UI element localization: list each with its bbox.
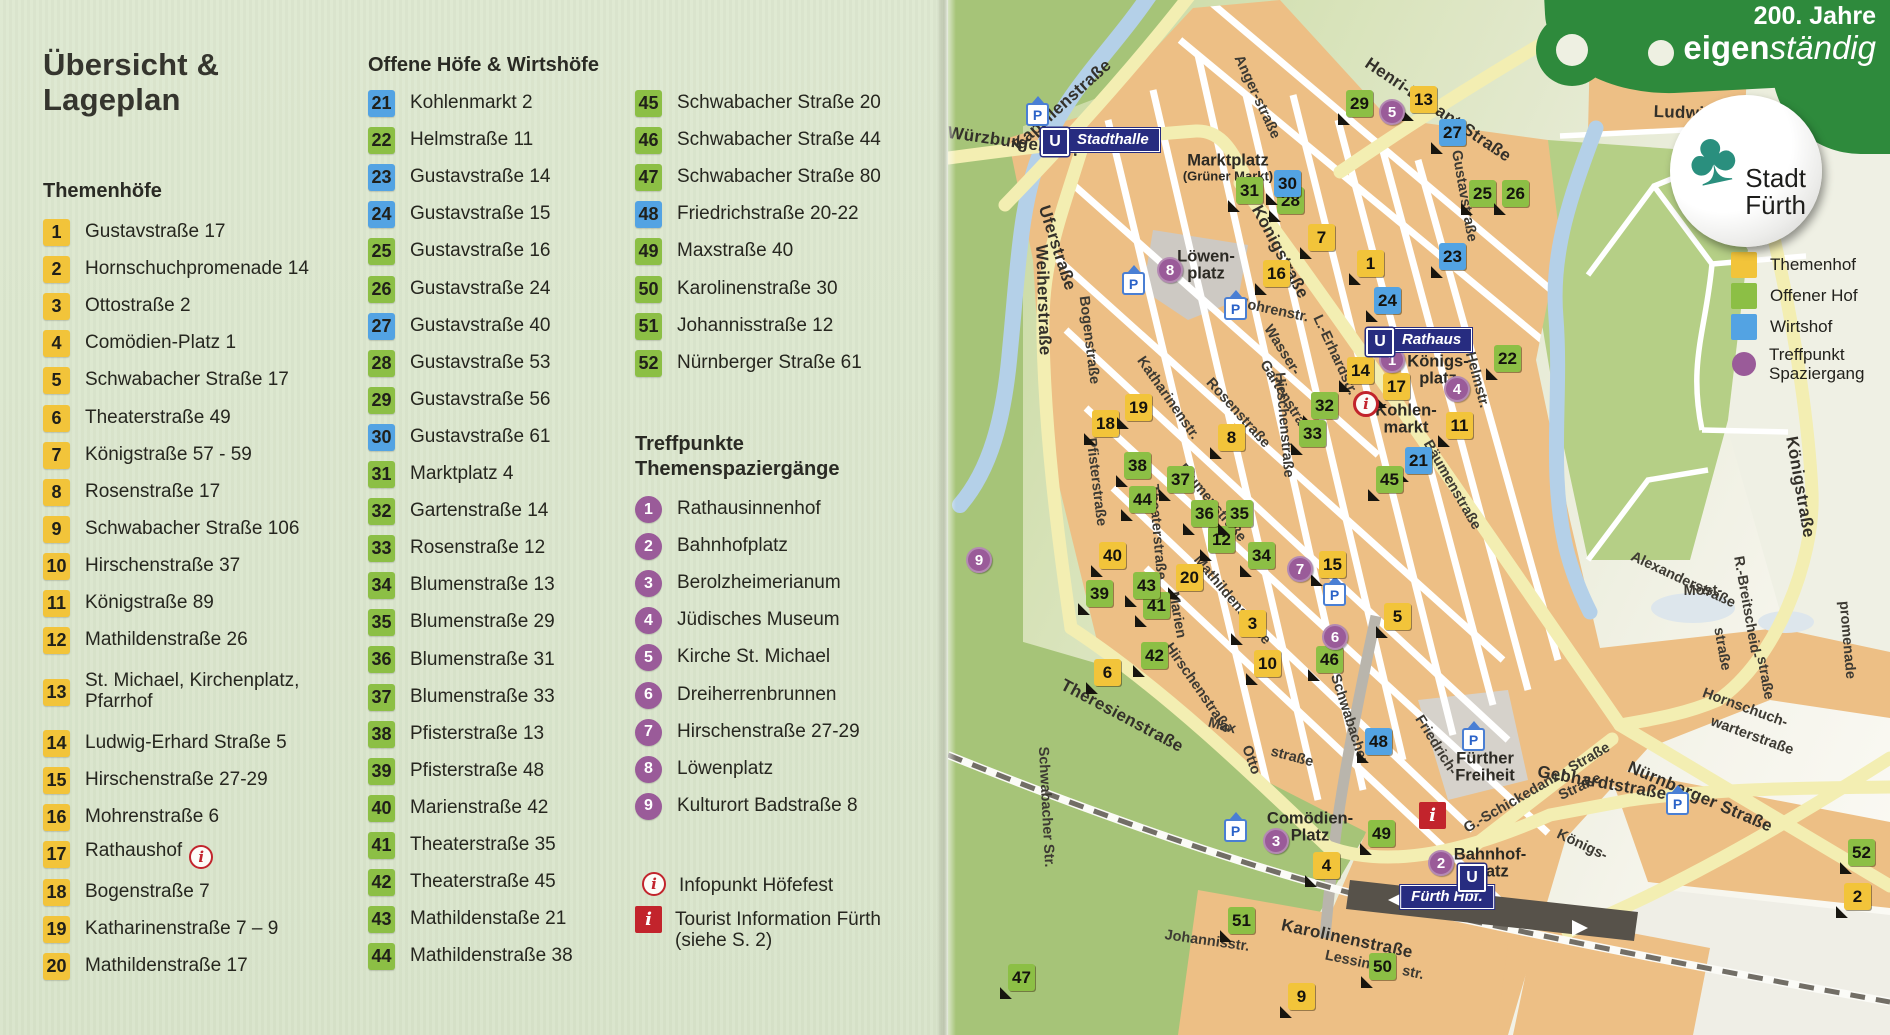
list-item-40: 40Marienstraße 42	[368, 790, 573, 827]
map-marker-6: 6	[1094, 659, 1121, 686]
item-number: 8	[635, 756, 662, 783]
overview-panel: Übersicht &Lageplan Themenhöfe 1Gustavst…	[0, 0, 948, 1035]
item-number: 24	[368, 201, 395, 228]
list-item-14: 14Ludwig-Erhard Straße 5	[43, 725, 309, 762]
item-text: Gustavstraße 15	[410, 204, 550, 225]
list-item-9: 9Kulturort Badstraße 8	[635, 788, 860, 825]
item-text: Hirschenstraße 37	[85, 556, 240, 577]
legend-item: TreffpunktSpaziergang	[1731, 345, 1864, 383]
item-text: Gustavstraße 61	[410, 427, 550, 448]
stadt-fuerth-sticker: ♣ StadtFürth	[1670, 95, 1822, 247]
item-text: Theaterstraße 49	[85, 408, 231, 429]
item-number: 8	[43, 479, 70, 506]
walk-marker-7: 7	[1287, 556, 1313, 582]
item-text: Marienstraße 42	[410, 798, 548, 819]
item-number: 26	[368, 276, 395, 303]
page-title: Übersicht &Lageplan	[43, 48, 219, 117]
map-marker-10: 10	[1254, 650, 1281, 677]
item-text: Karolinenstraße 30	[677, 279, 838, 300]
legend-item: Themenhof	[1731, 252, 1864, 278]
item-text: Schwabacher Straße 80	[677, 167, 881, 188]
map-marker-27: 27	[1439, 119, 1466, 146]
list-item-3: 3Berolzheimerianum	[635, 565, 860, 602]
item-text: Mathildenstraße 26	[85, 630, 248, 651]
item-text: Königstraße 89	[85, 593, 214, 614]
list-item-10: 10Hirschenstraße 37	[43, 548, 309, 585]
item-text: Berolzheimerianum	[677, 573, 841, 594]
item-text: Hornschuchpromenade 14	[85, 259, 309, 280]
item-number: 11	[43, 590, 70, 617]
map-marker-20: 20	[1176, 564, 1203, 591]
item-text: Friedrichstraße 20-22	[677, 204, 859, 225]
info-icon: i	[189, 845, 213, 869]
item-text: Maxstraße 40	[677, 241, 793, 262]
walk-marker-9: 9	[966, 547, 992, 573]
map-marker-4: 4	[1313, 852, 1340, 879]
map-marker-23: 23	[1439, 243, 1466, 270]
map-marker-45: 45	[1376, 466, 1403, 493]
fold-crease	[936, 0, 956, 1035]
map-marker-18: 18	[1092, 410, 1119, 437]
item-number: 23	[368, 164, 395, 191]
map-marker-52: 52	[1848, 839, 1875, 866]
item-text: Rosenstraße 12	[410, 538, 545, 559]
map-marker-34: 34	[1248, 542, 1275, 569]
place-label: Löwen-platz	[1177, 249, 1235, 284]
map-marker-48: 48	[1365, 728, 1392, 755]
list-item-4: 4Jüdisches Museum	[635, 602, 860, 639]
map-marker-31: 31	[1236, 177, 1263, 204]
item-text: Pfisterstraße 13	[410, 724, 544, 745]
walk-marker-6: 6	[1322, 624, 1348, 650]
list-item-6: 6Dreiherrenbrunnen	[635, 676, 860, 713]
item-text: Blumenstraße 31	[410, 650, 555, 671]
item-number: 13	[43, 679, 70, 706]
list-item-6: 6Theaterstraße 49	[43, 399, 309, 436]
item-number: 31	[368, 461, 395, 488]
ubahn-icon: U	[1366, 328, 1394, 356]
item-text: Gustavstraße 53	[410, 353, 550, 374]
map-marker-33: 33	[1299, 420, 1326, 447]
list-item-21: 21Kohlenmarkt 2	[368, 85, 573, 122]
infopunkt-label: Infopunkt Höfefest	[679, 872, 833, 897]
tourist-info-icon: i	[635, 906, 662, 933]
item-text: Mathildenstaße 21	[410, 909, 566, 930]
ribbon-swirl-hole	[1648, 40, 1674, 66]
item-text: Blumenstraße 33	[410, 687, 555, 708]
item-text: St. Michael, Kirchenplatz,Pfarrhof	[85, 671, 299, 713]
list-item-18: 18Bogenstraße 7	[43, 874, 309, 911]
item-number: 45	[635, 90, 662, 117]
item-number: 35	[368, 609, 395, 636]
list-item-15: 15Hirschenstraße 27-29	[43, 762, 309, 799]
parking-icon: P	[1026, 103, 1049, 126]
legend-label: Themenhof	[1770, 255, 1856, 274]
item-number: 30	[368, 424, 395, 451]
item-text: Gartenstraße 14	[410, 501, 548, 522]
item-text: Helmstraße 11	[410, 130, 533, 151]
item-number: 6	[43, 405, 70, 432]
item-text: Ludwig-Erhard Straße 5	[85, 733, 287, 754]
legend-label: Wirtshof	[1770, 317, 1832, 336]
item-text: Kohlenmarkt 2	[410, 93, 533, 114]
walk-marker-5: 5	[1379, 99, 1405, 125]
map-marker-51: 51	[1228, 907, 1255, 934]
list-item-48: 48Friedrichstraße 20-22	[635, 196, 881, 233]
item-number: 16	[43, 804, 70, 831]
list-themenhoefe: 1Gustavstraße 172Hornschuchpromenade 143…	[43, 214, 309, 985]
item-number: 32	[368, 498, 395, 525]
item-text: Ottostraße 2	[85, 296, 191, 317]
walk-marker-2: 2	[1428, 850, 1454, 876]
item-text: Blumenstraße 13	[410, 575, 555, 596]
list-item-1: 1Rathausinnenhof	[635, 491, 860, 528]
parking-icon: P	[1224, 297, 1247, 320]
list-item-52: 52Nürnberger Straße 61	[635, 345, 881, 382]
list-item-22: 22Helmstraße 11	[368, 122, 573, 159]
item-number: 4	[635, 607, 662, 634]
map-marker-17: 17	[1383, 373, 1410, 400]
list-offene-hoefe-1: 21Kohlenmarkt 222Helmstraße 1123Gustavst…	[368, 85, 573, 975]
item-number: 2	[635, 533, 662, 560]
map-marker-13: 13	[1410, 86, 1437, 113]
list-item-1: 1Gustavstraße 17	[43, 214, 309, 251]
item-number: 1	[43, 219, 70, 246]
map-marker-14: 14	[1347, 357, 1374, 384]
street-label: Most-	[1684, 583, 1723, 599]
list-item-7: 7Hirschenstraße 27-29	[635, 714, 860, 751]
list-item-24: 24Gustavstraße 15	[368, 196, 573, 233]
list-item-27: 27Gustavstraße 40	[368, 308, 573, 345]
item-text: Rathausinnenhof	[677, 499, 821, 520]
item-text: Gustavstraße 24	[410, 279, 550, 300]
item-number: 41	[368, 832, 395, 859]
list-item-16: 16Mohrenstraße 6	[43, 799, 309, 836]
item-number: 15	[43, 767, 70, 794]
list-item-11: 11Königstraße 89	[43, 585, 309, 622]
list-item-51: 51Johannisstraße 12	[635, 308, 881, 345]
list-item-3: 3Ottostraße 2	[43, 288, 309, 325]
item-number: 22	[368, 127, 395, 154]
list-item-2: 2Hornschuchpromenade 14	[43, 251, 309, 288]
map-marker-16: 16	[1263, 260, 1290, 287]
item-number: 6	[635, 682, 662, 709]
map-marker-35: 35	[1226, 500, 1253, 527]
item-text: Mohrenstraße 6	[85, 807, 219, 828]
item-number: 52	[635, 350, 662, 377]
item-number: 34	[368, 572, 395, 599]
item-text: Königstraße 57 - 59	[85, 445, 252, 466]
map-marker-32: 32	[1311, 392, 1338, 419]
stadt-fuerth-label: StadtFürth	[1745, 165, 1806, 219]
item-text: Schwabacher Straße 44	[677, 130, 881, 151]
infopunkt-row: i Infopunkt Höfefest	[635, 872, 881, 897]
ubahn-icon: U	[1041, 128, 1069, 156]
badge-rathaus: Rathaus	[1391, 328, 1472, 352]
item-text: Gustavstraße 40	[410, 316, 550, 337]
item-number: 17	[43, 841, 70, 868]
item-text: Katharinenstraße 7 – 9	[85, 919, 278, 940]
map-marker-19: 19	[1125, 394, 1152, 421]
list-item-47: 47Schwabacher Straße 80	[635, 159, 881, 196]
infopunkt-map-icon: i	[1353, 391, 1379, 417]
list-item-5: 5Kirche St. Michael	[635, 639, 860, 676]
item-text: Dreiherrenbrunnen	[677, 685, 837, 706]
item-number: 39	[368, 758, 395, 785]
map-legend: ThemenhofOffener HofWirtshofTreffpunktSp…	[1731, 252, 1864, 388]
item-text: Gustavstraße 17	[85, 222, 225, 243]
brochure-scan: { "page": { "title_line1": "Übersicht &"…	[0, 0, 1890, 1035]
map-marker-25: 25	[1469, 180, 1496, 207]
map-marker-49: 49	[1368, 820, 1395, 847]
ribbon-curl	[1536, 14, 1608, 86]
infopunkt-icon: i	[642, 872, 666, 896]
list-item-26: 26Gustavstraße 24	[368, 270, 573, 307]
map-marker-26: 26	[1502, 180, 1529, 207]
list-treffpunkte: 1Rathausinnenhof2Bahnhofplatz3Berolzheim…	[635, 491, 860, 825]
list-item-31: 31Marktplatz 4	[368, 456, 573, 493]
heading-treffpunkte: TreffpunkteThemenspaziergänge	[635, 432, 840, 482]
item-number: 18	[43, 879, 70, 906]
list-item-17: 17Rathaushofi	[43, 836, 309, 873]
tourist-info-label: Tourist Information Fürth(siehe S. 2)	[675, 906, 881, 952]
anniversary-text: 200. Jahre eigenständig	[1683, 4, 1876, 64]
legend-swatch	[1731, 283, 1757, 309]
item-number: 36	[368, 646, 395, 673]
map-marker-11: 11	[1446, 412, 1473, 439]
item-number: 4	[43, 330, 70, 357]
tourist-info-row: i Tourist Information Fürth(siehe S. 2)	[635, 906, 881, 952]
map-marker-9: 9	[1288, 983, 1315, 1010]
info-block: i Infopunkt Höfefest i Tourist Informati…	[635, 872, 881, 961]
item-number: 50	[635, 276, 662, 303]
item-text: Johannisstraße 12	[677, 316, 833, 337]
clover-icon: ♣	[1681, 117, 1744, 199]
item-text: Marktplatz 4	[410, 464, 513, 485]
item-number: 7	[43, 442, 70, 469]
list-item-8: 8Rosenstraße 17	[43, 474, 309, 511]
list-item-38: 38Pfisterstraße 13	[368, 716, 573, 753]
heading-offene-hoefe: Offene Höfe & Wirtshöfe	[368, 54, 599, 77]
list-item-36: 36Blumenstraße 31	[368, 641, 573, 678]
legend-swatch	[1731, 314, 1757, 340]
item-number: 12	[43, 627, 70, 654]
list-item-9: 9Schwabacher Straße 106	[43, 511, 309, 548]
item-text: Gustavstraße 14	[410, 167, 550, 188]
map-marker-24: 24	[1374, 287, 1401, 314]
walk-marker-8: 8	[1157, 257, 1183, 283]
item-text: Schwabacher Straße 17	[85, 370, 289, 391]
map-marker-30: 30	[1274, 170, 1301, 197]
map-marker-50: 50	[1369, 953, 1396, 980]
item-number: 9	[43, 516, 70, 543]
item-text: Comödien-Platz 1	[85, 333, 236, 354]
legend-item: Wirtshof	[1731, 314, 1864, 340]
place-label: FürtherFreiheit	[1455, 751, 1515, 786]
map-marker-29: 29	[1346, 90, 1373, 117]
item-number: 9	[635, 793, 662, 820]
item-number: 48	[635, 201, 662, 228]
list-item-13: 13St. Michael, Kirchenplatz,Pfarrhof	[43, 659, 309, 725]
map-marker-42: 42	[1141, 642, 1168, 669]
parking-icon: P	[1122, 272, 1145, 295]
item-number: 1	[635, 496, 662, 523]
item-number: 3	[635, 570, 662, 597]
item-text: Bahnhofplatz	[677, 536, 788, 557]
legend-swatch	[1731, 252, 1757, 278]
list-item-44: 44Mathildenstraße 38	[368, 938, 573, 975]
map-marker-36: 36	[1191, 500, 1218, 527]
legend-label: Offener Hof	[1770, 286, 1858, 305]
item-number: 40	[368, 795, 395, 822]
list-item-46: 46Schwabacher Straße 44	[635, 122, 881, 159]
legend-item: Offener Hof	[1731, 283, 1864, 309]
list-item-35: 35Blumenstraße 29	[368, 604, 573, 641]
list-item-2: 2Bahnhofplatz	[635, 528, 860, 565]
item-text: Bogenstraße 7	[85, 882, 210, 903]
item-number: 43	[368, 906, 395, 933]
item-number: 19	[43, 916, 70, 943]
item-number: 51	[635, 313, 662, 340]
tourist-info-map-icon: i	[1419, 802, 1446, 829]
item-text: Löwenplatz	[677, 759, 773, 780]
item-text: Theaterstraße 45	[410, 872, 556, 893]
map-marker-15: 15	[1319, 551, 1346, 578]
item-number: 42	[368, 869, 395, 896]
item-number: 14	[43, 730, 70, 757]
map-marker-5: 5	[1384, 603, 1411, 630]
item-text: Gustavstraße 56	[410, 390, 550, 411]
parking-icon: P	[1224, 819, 1247, 842]
item-number: 29	[368, 387, 395, 414]
map-marker-1: 1	[1357, 250, 1384, 277]
list-item-33: 33Rosenstraße 12	[368, 530, 573, 567]
item-number: 25	[368, 238, 395, 265]
item-text: Gustavstraße 16	[410, 241, 550, 262]
item-number: 49	[635, 238, 662, 265]
item-number: 7	[635, 719, 662, 746]
map-marker-3: 3	[1239, 610, 1266, 637]
street-label: Weiherstraße	[1031, 244, 1055, 356]
list-item-29: 29Gustavstraße 56	[368, 382, 573, 419]
map-marker-46: 46	[1316, 646, 1343, 673]
item-number: 10	[43, 553, 70, 580]
list-item-30: 30Gustavstraße 61	[368, 419, 573, 456]
map-marker-2: 2	[1844, 883, 1871, 910]
list-item-28: 28Gustavstraße 53	[368, 345, 573, 382]
map-marker-40: 40	[1099, 542, 1126, 569]
list-item-43: 43Mathildenstaße 21	[368, 901, 573, 938]
legend-swatch	[1732, 352, 1756, 376]
list-item-25: 25Gustavstraße 16	[368, 233, 573, 270]
item-number: 33	[368, 535, 395, 562]
item-text: Rathaushofi	[85, 841, 213, 869]
list-item-42: 42Theaterstraße 45	[368, 864, 573, 901]
map-marker-38: 38	[1124, 452, 1151, 479]
item-number: 47	[635, 164, 662, 191]
item-text: Schwabacher Straße 20	[677, 93, 881, 114]
item-number: 21	[368, 90, 395, 117]
list-offene-hoefe-2: 45Schwabacher Straße 2046Schwabacher Str…	[635, 85, 881, 382]
parking-icon: P	[1462, 728, 1485, 751]
list-item-39: 39Pfisterstraße 48	[368, 753, 573, 790]
item-text: Blumenstraße 29	[410, 612, 555, 633]
map-marker-43: 43	[1133, 572, 1160, 599]
item-text: Mathildenstraße 38	[410, 946, 573, 967]
item-number: 38	[368, 721, 395, 748]
legend-label: TreffpunktSpaziergang	[1769, 345, 1864, 383]
list-item-45: 45Schwabacher Straße 20	[635, 85, 881, 122]
item-number: 37	[368, 684, 395, 711]
city-map: KapellenstraßeWürzburger Str.UferstraßeW…	[948, 0, 1890, 1035]
item-text: Kulturort Badstraße 8	[677, 796, 858, 817]
item-text: Hirschenstraße 27-29	[677, 722, 860, 743]
walk-marker-4: 4	[1444, 376, 1470, 402]
map-marker-39: 39	[1086, 580, 1113, 607]
map-marker-21: 21	[1405, 447, 1432, 474]
list-item-19: 19Katharinenstraße 7 – 9	[43, 911, 309, 948]
map-marker-44: 44	[1129, 486, 1156, 513]
item-text: Schwabacher Straße 106	[85, 519, 299, 540]
walk-marker-3: 3	[1263, 828, 1289, 854]
map-marker-37: 37	[1167, 466, 1194, 493]
heading-themenhoefe: Themenhöfe	[43, 180, 162, 203]
list-item-4: 4Comödien-Platz 1	[43, 325, 309, 362]
item-number: 3	[43, 293, 70, 320]
list-item-49: 49Maxstraße 40	[635, 233, 881, 270]
item-text: Hirschenstraße 27-29	[85, 770, 268, 791]
item-number: 44	[368, 943, 395, 970]
list-item-23: 23Gustavstraße 14	[368, 159, 573, 196]
item-number: 2	[43, 256, 70, 283]
item-number: 20	[43, 953, 70, 980]
list-item-50: 50Karolinenstraße 30	[635, 270, 881, 307]
list-item-41: 41Theaterstraße 35	[368, 827, 573, 864]
item-text: Jüdisches Museum	[677, 610, 840, 631]
item-number: 46	[635, 127, 662, 154]
parking-icon: P	[1323, 583, 1346, 606]
item-number: 5	[635, 644, 662, 671]
list-item-7: 7Königstraße 57 - 59	[43, 437, 309, 474]
item-number: 5	[43, 367, 70, 394]
map-marker-22: 22	[1494, 345, 1521, 372]
map-marker-7: 7	[1308, 224, 1335, 251]
list-item-20: 20Mathildenstraße 17	[43, 948, 309, 985]
ubahn-icon: U	[1458, 864, 1486, 892]
list-item-32: 32Gartenstraße 14	[368, 493, 573, 530]
list-item-8: 8Löwenplatz	[635, 751, 860, 788]
item-text: Nürnberger Straße 61	[677, 353, 862, 374]
item-number: 28	[368, 350, 395, 377]
item-text: Kirche St. Michael	[677, 647, 830, 668]
list-item-12: 12Mathildenstraße 26	[43, 622, 309, 659]
item-text: Pfisterstraße 48	[410, 761, 544, 782]
item-text: Rosenstraße 17	[85, 482, 220, 503]
list-item-34: 34Blumenstraße 13	[368, 567, 573, 604]
item-text: Mathildenstraße 17	[85, 956, 248, 977]
badge-stadthalle: Stadthalle	[1066, 128, 1160, 152]
parking-icon: P	[1666, 792, 1689, 815]
list-item-5: 5Schwabacher Straße 17	[43, 362, 309, 399]
item-number: 27	[368, 313, 395, 340]
list-item-37: 37Blumenstraße 33	[368, 679, 573, 716]
item-text: Theaterstraße 35	[410, 835, 556, 856]
map-marker-47: 47	[1008, 964, 1035, 991]
map-marker-8: 8	[1218, 424, 1245, 451]
